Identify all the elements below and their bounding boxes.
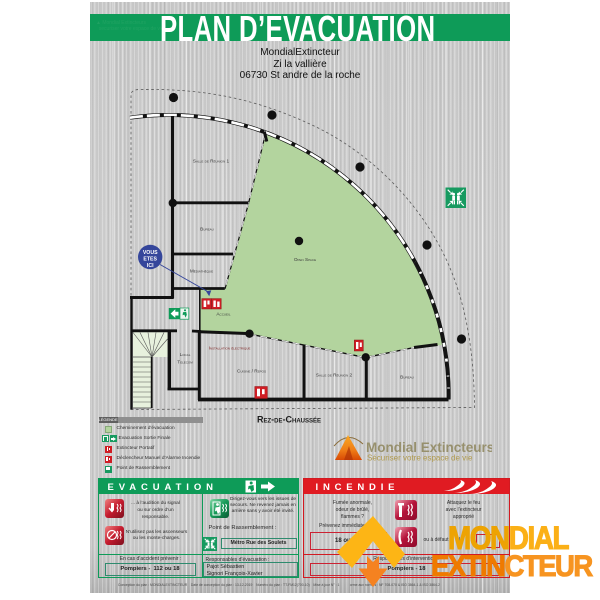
svg-text:Cuisine / Repos: Cuisine / Repos xyxy=(237,368,266,373)
svg-text:Médiathèque: Médiathèque xyxy=(190,268,213,273)
svg-text:Installation électrique: Installation électrique xyxy=(209,345,251,350)
svg-text:Salle de Réunion 1: Salle de Réunion 1 xyxy=(193,159,230,164)
svg-text:ICI: ICI xyxy=(147,263,154,269)
svg-text:Bureau: Bureau xyxy=(400,374,414,379)
svg-text:Salle de Réunion 2: Salle de Réunion 2 xyxy=(316,372,353,377)
svg-text:VOUS: VOUS xyxy=(143,250,158,256)
svg-text:Telecom: Telecom xyxy=(177,359,193,364)
svg-text:Sécuriser votre espace de vie: Sécuriser votre espace de vie xyxy=(367,454,473,463)
svg-text:Rez-de-Chaussée: Rez-de-Chaussée xyxy=(257,415,321,425)
svg-text:Bureau: Bureau xyxy=(200,226,214,231)
svg-text:ETES: ETES xyxy=(143,257,157,263)
svg-text:Local: Local xyxy=(180,352,191,357)
svg-text:Accueil: Accueil xyxy=(216,311,230,316)
svg-text:Open Space: Open Space xyxy=(294,257,316,262)
